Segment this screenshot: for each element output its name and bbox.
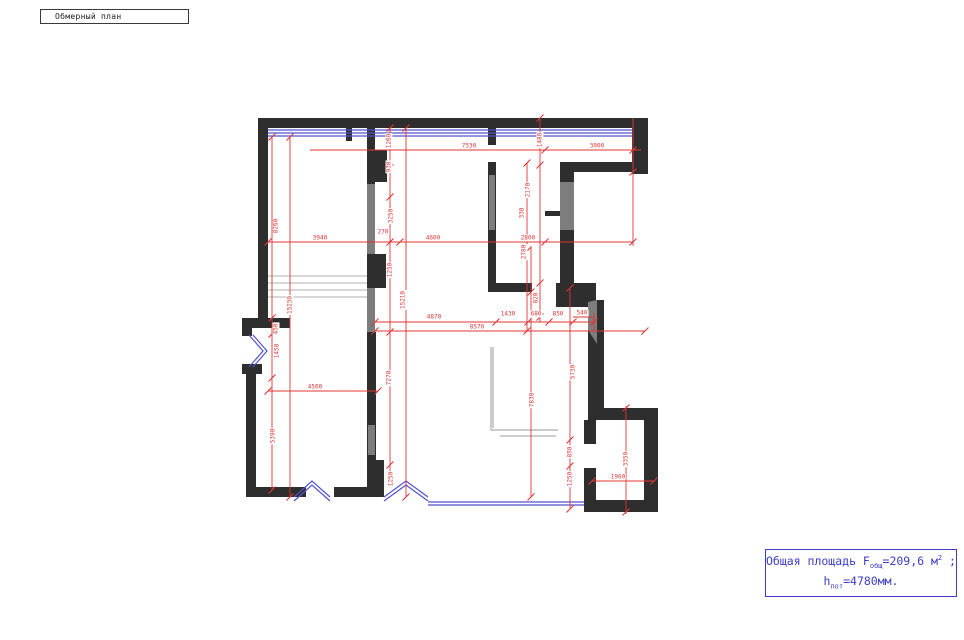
bay-window-zigzag [249, 335, 267, 367]
drawing-canvas: Обмерный план [0, 0, 964, 640]
dimension-label: 930 [386, 161, 393, 174]
dimension-label: 1260 [386, 133, 393, 149]
dimension-label: 7530 [461, 143, 477, 150]
height-subscript: пот [830, 583, 843, 591]
dimension-label: 330 [519, 207, 526, 220]
dimension-label: 1250 [387, 262, 394, 278]
area-summary-box: Общая площадь Fобщ=209,6 м2 ; hпот=4780м… [765, 549, 957, 597]
walls-layer [242, 118, 658, 512]
area-subscript: общ [870, 562, 883, 570]
dimension-label: 3940 [312, 235, 328, 242]
dimension-label: 1430 [500, 311, 516, 318]
dimension-label: 1480 [537, 132, 544, 148]
dimension-label: 2170 [525, 182, 532, 198]
gray-detail-lines [262, 276, 374, 297]
area-value: =209,6 м [883, 554, 938, 568]
area-summary-line2: hпот=4780мм. [824, 574, 899, 594]
dimension-label: 5730 [570, 364, 577, 380]
furniture-outline [491, 347, 558, 436]
dimension-label: 8260 [273, 218, 280, 234]
floor-plan-drawing [0, 0, 964, 640]
dimension-label: 820 [533, 292, 540, 305]
area-summary-line1: Общая площадь Fобщ=209,6 м2 ; [766, 551, 956, 574]
dimension-label: 1250 [388, 471, 395, 487]
dimension-label: 4870 [426, 314, 442, 321]
area-label: Общая площадь F [766, 554, 870, 568]
dimension-label: 15230 [287, 295, 294, 315]
dimension-label: 850 [552, 311, 565, 318]
dimension-label: 7830 [529, 392, 536, 408]
dimension-label: 7270 [386, 370, 393, 386]
dimension-label: 450 [273, 323, 280, 336]
dimension-label: 3350 [623, 451, 630, 467]
dimension-label: 5390 [270, 428, 277, 444]
dimension-label: 540 [576, 310, 589, 317]
dimension-label: 4600 [425, 235, 441, 242]
height-value: =4780мм. [843, 574, 898, 588]
dimension-label: 850 [567, 446, 574, 459]
dimension-label: 1250 [567, 471, 574, 487]
dimension-label: 4500 [307, 384, 323, 391]
top-glazing [268, 130, 632, 136]
bottom-glazing [428, 502, 584, 505]
dimension-label: 270 [377, 229, 390, 236]
dimension-label: 1450 [274, 343, 281, 359]
dimension-label: 3250 [388, 208, 395, 224]
dimension-label: 680 [530, 311, 543, 318]
dimension-label: 2780 [521, 244, 528, 260]
dimension-label: 3000 [589, 143, 605, 150]
dimension-label: 1960 [610, 474, 626, 481]
dimension-label: 15210 [400, 290, 407, 310]
area-tail: ; [942, 554, 956, 568]
dimension-label: 8570 [469, 324, 485, 331]
dimension-label: 2800 [520, 235, 536, 242]
